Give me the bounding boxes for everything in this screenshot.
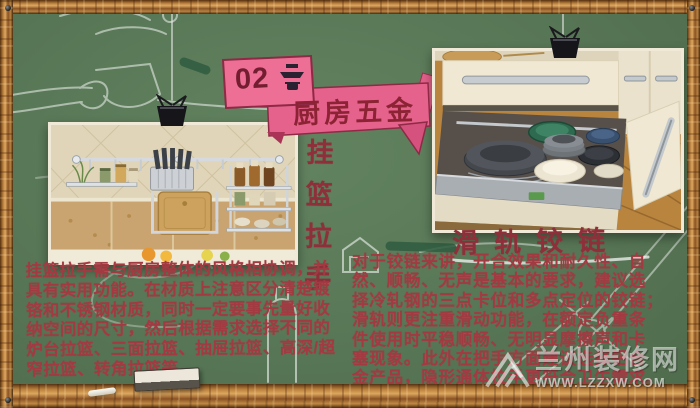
wood-frame-right — [687, 0, 700, 408]
binder-clip-icon — [152, 94, 192, 128]
watermark-logo-icon — [484, 347, 530, 389]
frame-screw — [5, 5, 11, 11]
binder-clip-icon — [545, 26, 585, 60]
left-paragraph: 挂篮拉手需与厨房整体的风格相协调，并 具有实用功能。在材质上注意区分清楚镀 铬和… — [26, 260, 336, 381]
paragraph-line: 对于铰链来讲，开合效果和耐久性、自 — [352, 253, 663, 272]
section-number: 02 — [234, 62, 270, 97]
paragraph-line: 炉台拉篮、三面拉篮、抽屉拉篮、高深/超 — [26, 339, 335, 361]
chalkboard-poster: 02 厨房五金 挂篮拉手 挂篮拉手需与厨房整体的风格相协调，并 具有实用功能。在… — [0, 0, 700, 408]
watermark-site-url: WWW.LZZXW.COM — [535, 376, 680, 389]
range-hood-icon — [277, 62, 307, 94]
frame-screw — [689, 5, 695, 11]
photo-drawer-slide — [432, 48, 684, 233]
paragraph-line: 择冷轧钢的三点卡位和多点定位的铰链； — [352, 292, 663, 311]
paragraph-line: 具有实用功能。在材质上注意区分清楚镀 — [26, 280, 335, 302]
frame-screw — [689, 397, 695, 403]
section-title: 厨房五金 — [292, 88, 433, 132]
watermark: 兰州装修网 WWW.LZZXW.COM — [484, 347, 680, 389]
paragraph-line: 铬和不锈钢材质，同时一定要事先量好收 — [26, 300, 335, 322]
board-eraser — [133, 367, 200, 391]
watermark-site-name: 兰州装修网 — [535, 347, 680, 374]
paragraph-line: 纳空间的尺寸，然后根据需求选择不同的 — [26, 319, 335, 341]
frame-screw — [5, 397, 11, 403]
section-banner: 02 厨房五金 — [213, 50, 445, 162]
paragraph-line: 滑轨则更注重滑动功能，在额定负重条 — [352, 311, 663, 330]
paragraph-line: 挂篮拉手需与厨房整体的风格相协调，并 — [26, 260, 335, 282]
wood-frame-left — [0, 0, 13, 408]
paragraph-line: 然、顺畅、无声是基本的要求，建议选 — [352, 272, 663, 291]
wood-frame-top — [0, 0, 700, 14]
